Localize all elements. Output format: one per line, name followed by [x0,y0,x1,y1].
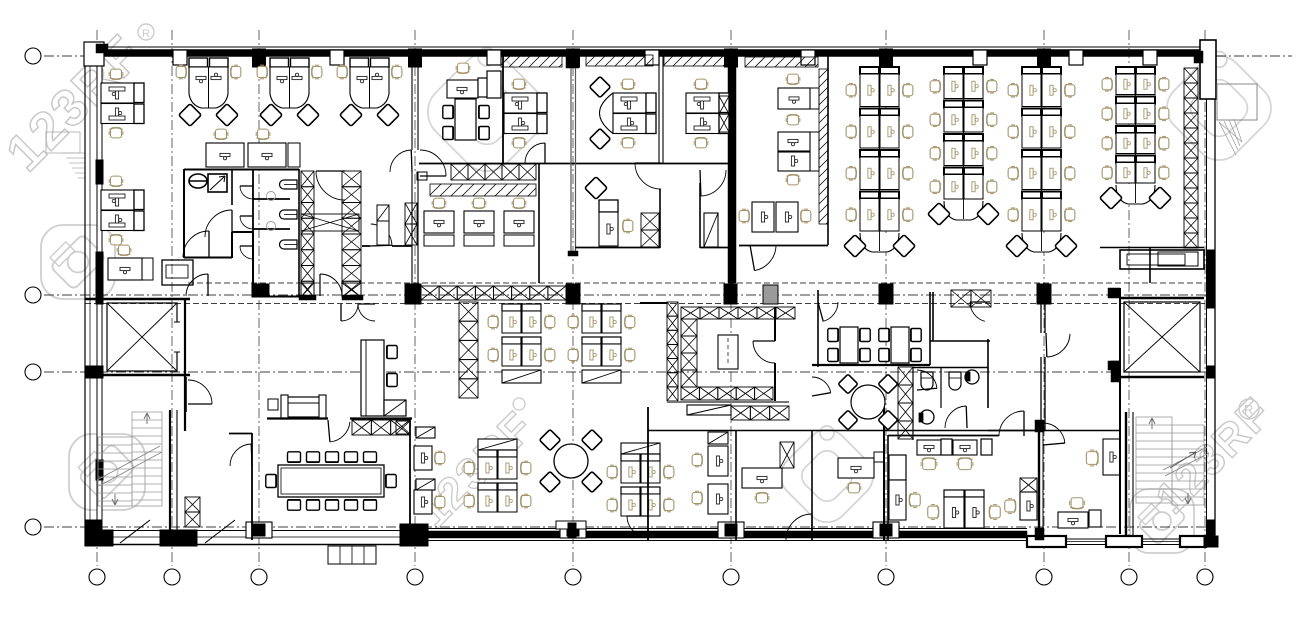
svg-text:R: R [1244,402,1253,417]
svg-text:R: R [142,28,150,40]
